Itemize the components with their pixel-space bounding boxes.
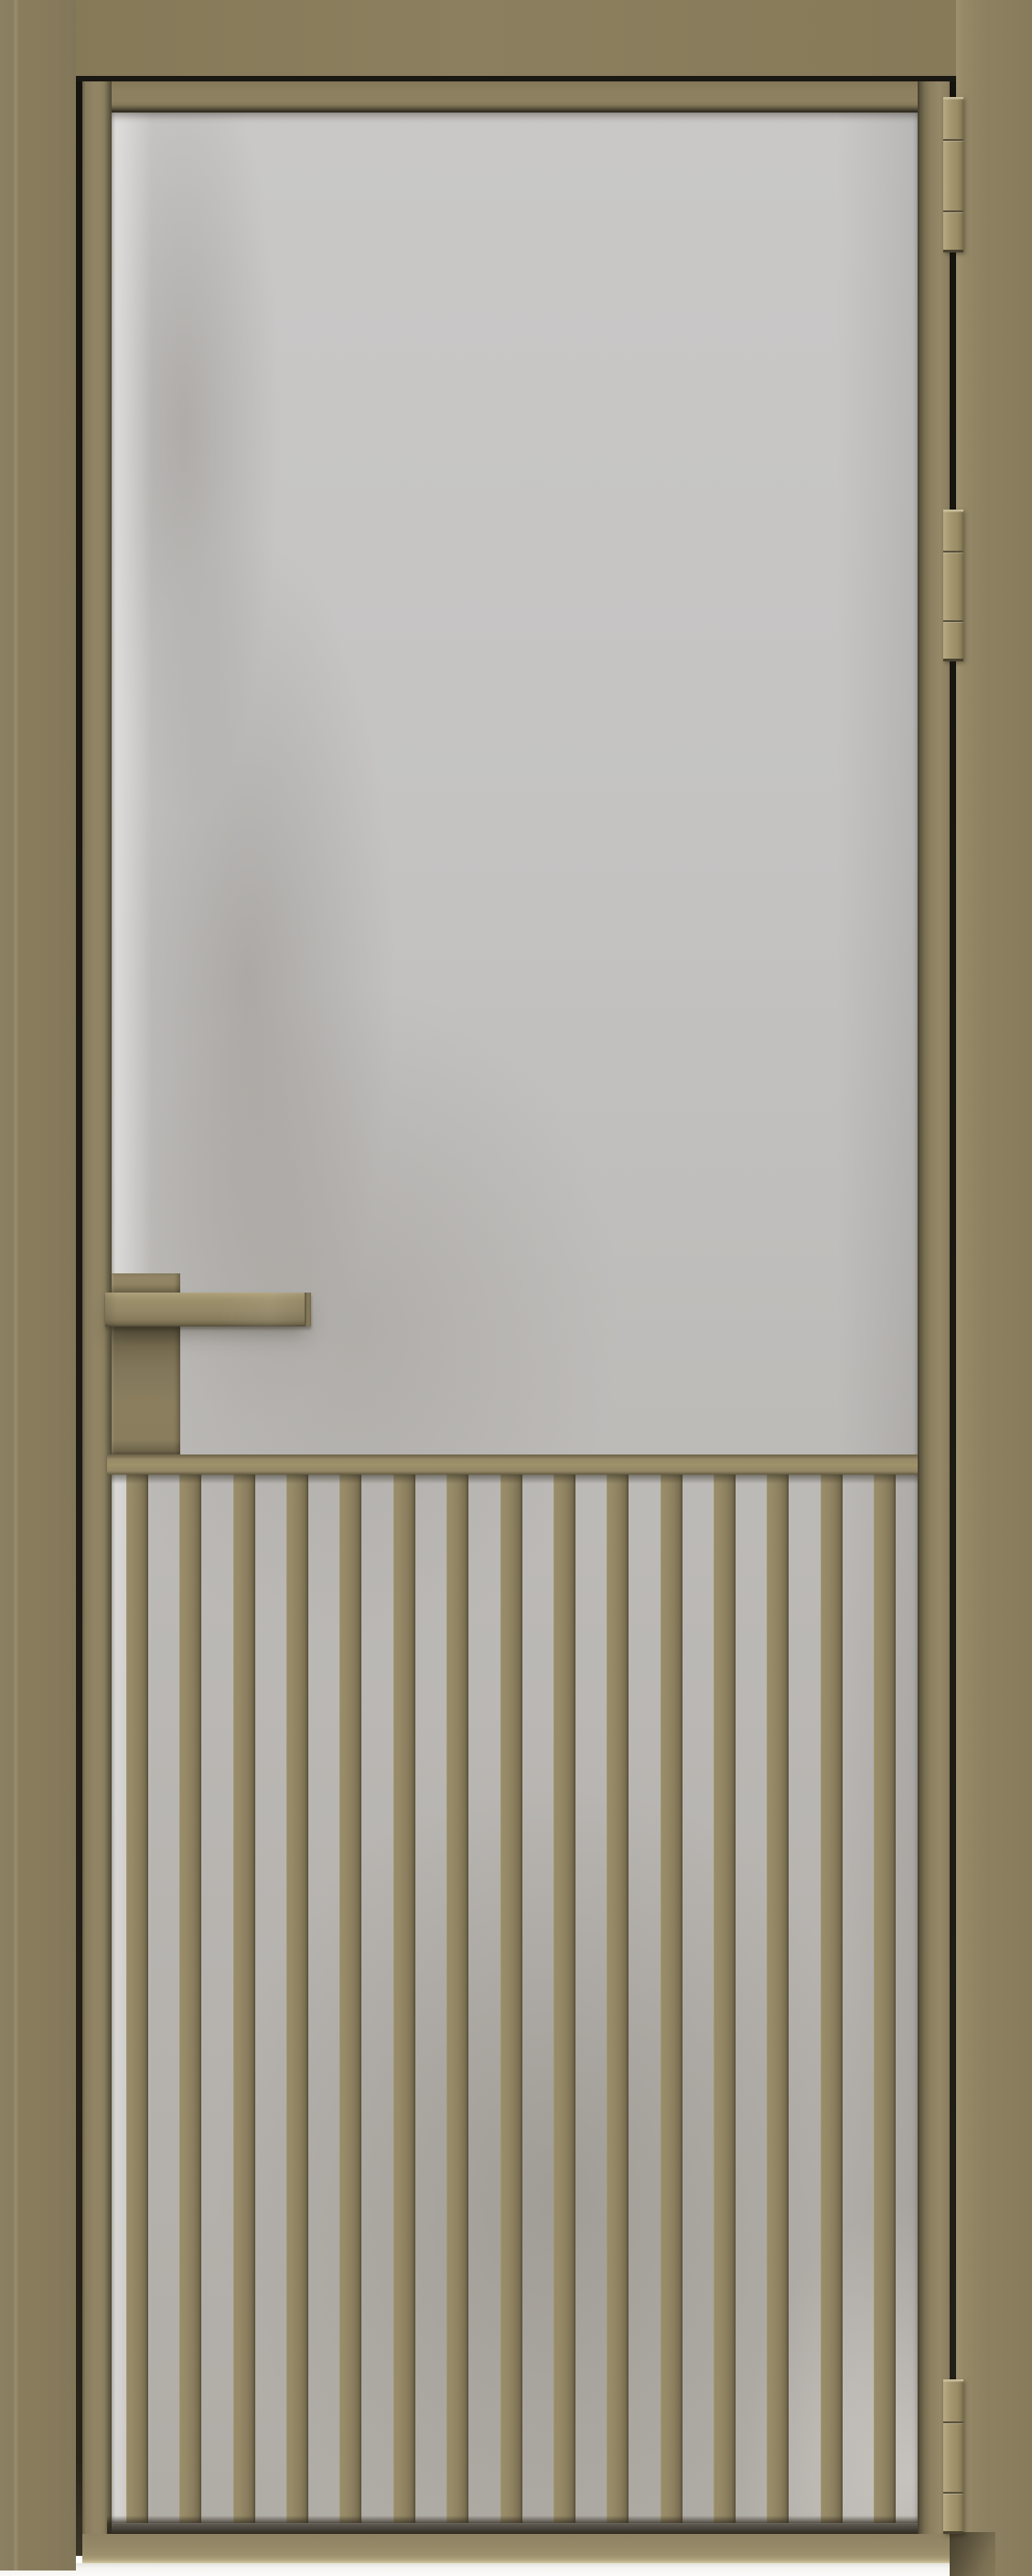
- slat: [286, 1475, 308, 2523]
- hinge-top: [943, 97, 963, 252]
- lever-handle: [105, 1293, 311, 1326]
- slat: [393, 1475, 415, 2523]
- top-rail: [82, 81, 950, 113]
- slat-top-shadow: [112, 1475, 918, 1484]
- right-stile: [918, 81, 950, 2563]
- bottom-shadow-band: [107, 2516, 918, 2534]
- slat: [179, 1475, 201, 2523]
- slat: [821, 1475, 843, 2523]
- reveal-gap-left: [76, 81, 82, 2556]
- door-product-render: [0, 0, 1032, 2576]
- slat-grille: [112, 1475, 918, 2523]
- hinge-knuckle: [943, 210, 963, 252]
- slat: [874, 1475, 896, 2523]
- door-frame-right-jamb: [956, 0, 1032, 2576]
- slat: [126, 1475, 148, 2523]
- door-leaf: [82, 81, 950, 2563]
- door-frame-header: [0, 0, 1032, 76]
- slat: [607, 1475, 629, 2523]
- hinge-knuckle: [943, 551, 963, 620]
- slat: [233, 1475, 255, 2523]
- hinge-knuckle: [943, 620, 963, 661]
- handle-end-cap: [305, 1293, 311, 1326]
- slat: [339, 1475, 361, 2523]
- hinge-knuckle: [943, 139, 963, 210]
- hinge-knuckle: [943, 2492, 963, 2534]
- reveal-gap-right: [950, 81, 956, 2534]
- floor: [0, 2563, 1032, 2576]
- slat: [500, 1475, 522, 2523]
- hinge-knuckle: [943, 2379, 963, 2421]
- slat: [714, 1475, 736, 2523]
- slat: [554, 1475, 575, 2523]
- hinge-knuckle: [943, 97, 963, 139]
- door-frame-left-jamb: [0, 0, 76, 2571]
- slat: [661, 1475, 683, 2523]
- slat: [446, 1475, 468, 2523]
- hinge-middle: [943, 510, 963, 661]
- hinge-knuckle: [943, 2421, 963, 2493]
- hinge-knuckle: [943, 510, 963, 551]
- hinge-bottom: [943, 2379, 963, 2534]
- lock-rail: [107, 1454, 918, 1475]
- bottom-right-corner-shadow: [950, 2532, 995, 2576]
- bottom-rail: [82, 2534, 950, 2563]
- slat: [767, 1475, 789, 2523]
